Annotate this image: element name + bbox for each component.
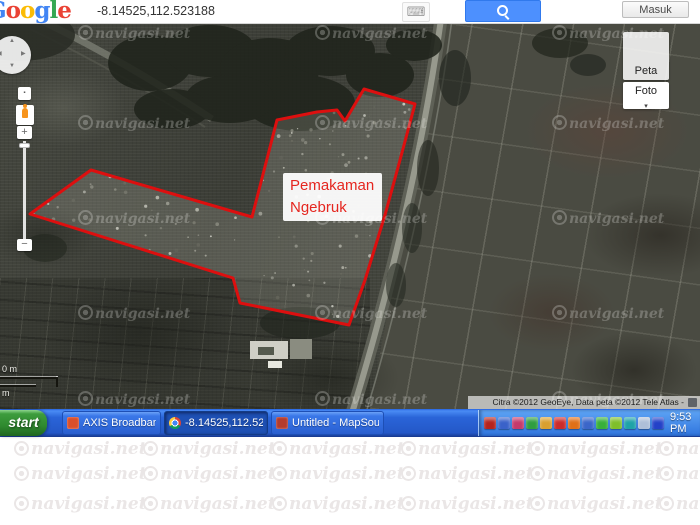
- watermark: navigasi.net: [143, 439, 276, 459]
- watermark: navigasi.net: [272, 464, 405, 484]
- google-logo-letter: g: [34, 0, 49, 24]
- orange-swirl-icon[interactable]: [568, 417, 580, 429]
- messenger-icon[interactable]: [498, 417, 510, 429]
- security-badge-icon[interactable]: [540, 417, 552, 429]
- antivirus-icon[interactable]: [512, 417, 524, 429]
- google-logo-letter: o: [20, 0, 34, 24]
- dual-monitor-icon[interactable]: [638, 417, 650, 429]
- display-settings-icon[interactable]: [582, 417, 594, 429]
- taskbar-button-axis-broadband[interactable]: AXIS Broadband 3G: [62, 411, 161, 435]
- zoom-in-button[interactable]: +: [17, 126, 32, 139]
- watermark: navigasi.net: [530, 494, 663, 514]
- reset-view-button[interactable]: ▪: [18, 87, 31, 100]
- scale-bar-tick: [56, 377, 58, 387]
- windows-taskbar: start AXIS Broadband 3G-8.14525,112.5231…: [0, 409, 700, 437]
- watermark: navigasi.net: [14, 494, 147, 514]
- google-logo-letter: e: [57, 0, 71, 24]
- watermark: navigasi.net: [143, 464, 276, 484]
- mapsource-icon: [276, 417, 288, 429]
- cemetery-label-line1: Pemakaman: [290, 175, 382, 197]
- axis-broadband-icon: [67, 417, 79, 429]
- watermark: navigasi.net: [530, 439, 663, 459]
- terms-icon[interactable]: [688, 398, 697, 407]
- watermark: navigasi.net: [401, 494, 534, 514]
- network-icon[interactable]: [652, 417, 664, 429]
- peta-button-label: Peta: [623, 65, 669, 77]
- pegman-icon: [22, 108, 28, 118]
- green-check-icon[interactable]: [596, 417, 608, 429]
- tray-icons: [484, 417, 664, 429]
- scale-bar-line1: [0, 377, 58, 379]
- watermark: navigasi.net: [272, 494, 405, 514]
- pan-down-icon[interactable]: ▼: [9, 63, 15, 69]
- zoom-slider-handle[interactable]: [19, 143, 30, 148]
- watermark: navigasi.net: [401, 439, 534, 459]
- foto-button-label: Foto: [623, 85, 669, 97]
- taskbar-button-label: Untitled - MapSource: [292, 417, 379, 429]
- buildings: [250, 339, 312, 368]
- pan-left-icon[interactable]: ◀: [0, 50, 2, 57]
- scale-label-metric: 0 m: [2, 364, 17, 374]
- pegman-button[interactable]: [16, 105, 34, 125]
- watermark: navigasi.net: [14, 439, 147, 459]
- zoom-out-button[interactable]: −: [17, 239, 32, 251]
- pan-up-icon[interactable]: ▲: [9, 38, 15, 44]
- chevron-down-icon: ▾: [623, 102, 669, 110]
- taskbar-button-chrome-coordinates[interactable]: -8.14525,112.52318...: [164, 411, 268, 435]
- watermark: navigasi.net: [659, 494, 700, 514]
- start-button[interactable]: start: [0, 410, 47, 436]
- watermark: navigasi.net: [272, 439, 405, 459]
- watermark: navigasi.net: [14, 464, 147, 484]
- watermark: navigasi.net: [530, 464, 663, 484]
- system-tray: 9:53 PM: [478, 410, 700, 436]
- red-user-icon[interactable]: [554, 417, 566, 429]
- google-logo: Google: [0, 0, 71, 24]
- taskbar-button-label: -8.14525,112.52318...: [185, 417, 263, 429]
- adobe-reader-icon[interactable]: [484, 417, 496, 429]
- map-type-foto-button[interactable]: Foto ▾: [623, 82, 669, 109]
- taskbar-button-label: AXIS Broadband 3G: [83, 417, 156, 429]
- search-icon: [497, 5, 508, 16]
- signin-button[interactable]: Masuk: [622, 1, 689, 18]
- keyboard-icon[interactable]: ⌨: [402, 2, 430, 22]
- leaf-icon[interactable]: [610, 417, 622, 429]
- cemetery-label-line2: Ngebruk: [290, 197, 382, 219]
- search-button[interactable]: [465, 0, 541, 22]
- map-type-peta-button[interactable]: Peta: [623, 32, 669, 80]
- map-copyright: Citra ©2012 GeoEye, Data peta ©2012 Tele…: [468, 396, 700, 409]
- page-footer: navigasi.netnavigasi.netnavigasi.netnavi…: [0, 437, 700, 525]
- watermark: navigasi.net: [659, 464, 700, 484]
- watermark: navigasi.net: [659, 439, 700, 459]
- taskbar-button-mapsource[interactable]: Untitled - MapSource: [271, 411, 384, 435]
- copyright-text: Citra ©2012 GeoEye, Data peta ©2012 Tele…: [493, 397, 684, 407]
- scale-bar-line2: [0, 385, 36, 387]
- pan-right-icon[interactable]: ▶: [21, 50, 26, 57]
- status-green-icon[interactable]: [526, 417, 538, 429]
- satellite-map[interactable]: navigasi.netnavigasi.netnavigasi.netnavi…: [0, 23, 700, 409]
- watermark: navigasi.net: [143, 494, 276, 514]
- zoom-slider-track[interactable]: [23, 141, 26, 239]
- taskbar-clock[interactable]: 9:53 PM: [670, 411, 700, 435]
- chrome-coordinates-icon: [169, 417, 181, 429]
- cemetery-label: Pemakaman Ngebruk: [283, 173, 382, 221]
- headset-icon[interactable]: [624, 417, 636, 429]
- google-logo-letter: o: [6, 0, 20, 24]
- google-maps-topbar: Google ⌨ Masuk: [0, 0, 700, 24]
- scale-label-secondary: m: [2, 388, 10, 398]
- watermark: navigasi.net: [401, 464, 534, 484]
- search-input[interactable]: [97, 2, 397, 19]
